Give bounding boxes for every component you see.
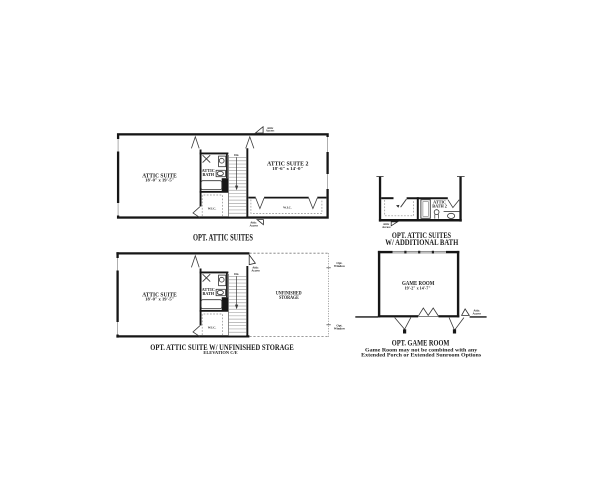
svg-text:Dn: Dn <box>234 272 238 276</box>
svg-text:BATH: BATH <box>203 172 215 177</box>
svg-text:Access: Access <box>251 268 260 272</box>
svg-text:Dn: Dn <box>234 153 238 157</box>
svg-text:W.I.C.: W.I.C. <box>208 207 217 211</box>
svg-text:BATH 2: BATH 2 <box>432 204 447 209</box>
svg-text:W.I.C.: W.I.C. <box>283 206 292 210</box>
svg-text:BATH: BATH <box>203 291 215 296</box>
svg-text:Window: Window <box>334 264 346 268</box>
svg-text:Access: Access <box>472 311 481 315</box>
svg-text:Window: Window <box>334 327 346 331</box>
svg-text:Access: Access <box>249 223 258 227</box>
svg-text:Extended Porch or Extended Sun: Extended Porch or Extended Sunroom Optio… <box>361 353 481 359</box>
svg-text:W.I.C.: W.I.C. <box>208 326 217 330</box>
svg-text:18'-0" x 19'-5": 18'-0" x 19'-5" <box>145 296 174 301</box>
svg-text:OPT. GAME ROOM: OPT. GAME ROOM <box>392 337 450 347</box>
svg-text:STORAGE: STORAGE <box>279 296 299 301</box>
svg-text:OPT. ATTIC SUITES: OPT. ATTIC SUITES <box>193 232 253 242</box>
svg-text:Access: Access <box>266 129 275 133</box>
svg-text:ELEVATION C/E: ELEVATION C/E <box>203 350 237 355</box>
svg-text:18'-0" x 19'-5": 18'-0" x 19'-5" <box>145 177 174 182</box>
svg-text:18'-6" x 14'-0": 18'-6" x 14'-0" <box>272 166 303 171</box>
svg-text:W/ ADDITIONAL BATH: W/ ADDITIONAL BATH <box>385 237 458 247</box>
svg-text:Access: Access <box>382 225 391 229</box>
svg-text:19'-2" x 14'-7": 19'-2" x 14'-7" <box>405 286 431 291</box>
